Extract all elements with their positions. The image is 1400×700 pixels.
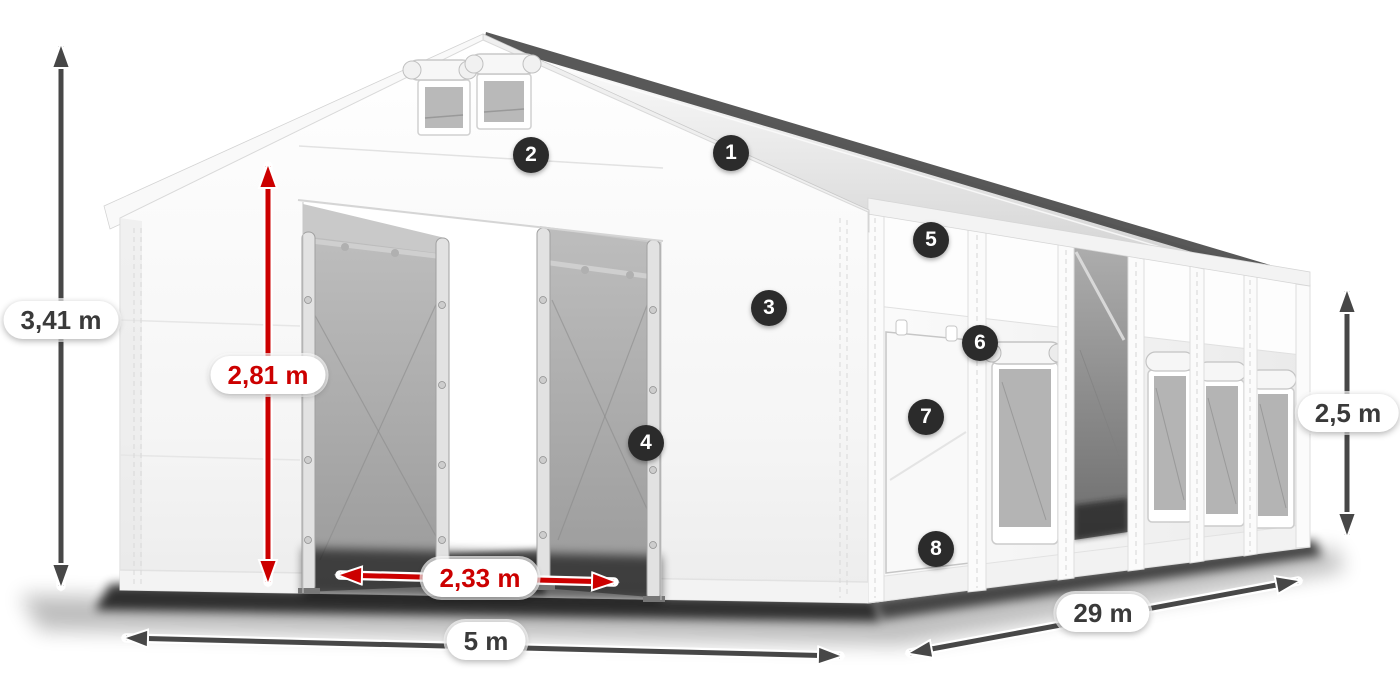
callout-badge-6[interactable]: 6 bbox=[962, 325, 998, 361]
dimension-label-side-wall-height: 2,5 m bbox=[1298, 394, 1399, 432]
callout-badge-1[interactable]: 1 bbox=[713, 135, 749, 171]
tent-illustration bbox=[0, 0, 1400, 700]
side-window-1 bbox=[983, 342, 1067, 544]
interior-mesh-left bbox=[303, 236, 445, 592]
callout-badge-4[interactable]: 4 bbox=[628, 425, 664, 461]
dimension-label-total-height: 3,41 m bbox=[4, 301, 119, 339]
side-window-2 bbox=[1146, 352, 1194, 522]
callout-badge-5[interactable]: 5 bbox=[913, 222, 949, 258]
callout-badge-8[interactable]: 8 bbox=[918, 531, 954, 567]
interior-mesh-right bbox=[543, 228, 661, 598]
callout-badge-3[interactable]: 3 bbox=[751, 290, 787, 326]
side-open-section bbox=[1074, 246, 1128, 540]
tent-figure: 3,41 m 2,81 m 2,33 m 5 m 29 m 2,5 m 1 2 … bbox=[0, 0, 1400, 700]
gable-window-right bbox=[465, 54, 541, 129]
dimension-label-entrance-width: 2,33 m bbox=[423, 559, 538, 597]
dimension-label-gable-width: 5 m bbox=[447, 622, 526, 660]
callout-badge-7[interactable]: 7 bbox=[908, 399, 944, 435]
dimension-label-side-length: 29 m bbox=[1056, 594, 1149, 632]
callout-badge-2[interactable]: 2 bbox=[513, 137, 549, 173]
dimension-label-entrance-height: 2,81 m bbox=[211, 356, 326, 394]
side-window-3 bbox=[1198, 362, 1246, 526]
